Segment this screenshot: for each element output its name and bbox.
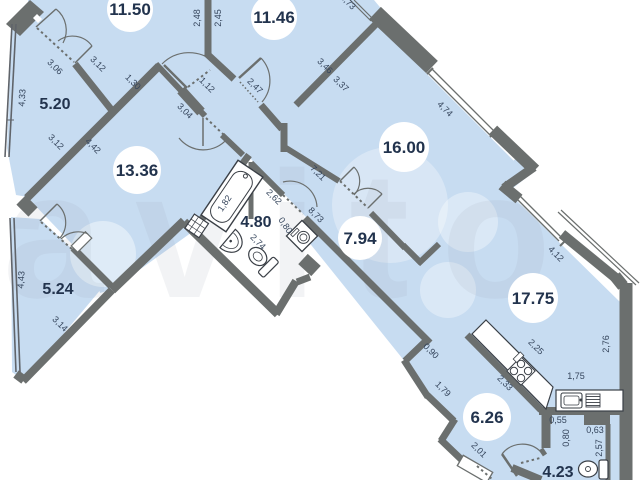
svg-text:5.20: 5.20 xyxy=(39,96,70,113)
svg-text:2,76: 2,76 xyxy=(601,335,611,353)
svg-text:4,33: 4,33 xyxy=(16,89,27,107)
svg-text:11.50: 11.50 xyxy=(109,0,151,19)
svg-text:5.24: 5.24 xyxy=(42,281,73,298)
svg-text:17.75: 17.75 xyxy=(512,289,555,308)
svg-text:2,48: 2,48 xyxy=(192,9,202,27)
svg-text:7.94: 7.94 xyxy=(343,229,377,248)
svg-text:11.46: 11.46 xyxy=(253,8,295,27)
svg-text:4,43: 4,43 xyxy=(15,271,26,289)
svg-text:2,45: 2,45 xyxy=(213,9,223,27)
svg-text:0,63: 0,63 xyxy=(586,425,604,435)
svg-text:0,55: 0,55 xyxy=(549,415,567,425)
svg-text:13.36: 13.36 xyxy=(116,161,159,180)
svg-text:6.26: 6.26 xyxy=(470,408,503,427)
svg-text:4.80: 4.80 xyxy=(240,214,271,231)
svg-text:1,75: 1,75 xyxy=(567,371,585,381)
svg-text:4.23: 4.23 xyxy=(542,464,573,480)
svg-text:2,57: 2,57 xyxy=(594,439,604,457)
svg-text:0,80: 0,80 xyxy=(561,429,571,447)
svg-text:16.00: 16.00 xyxy=(383,138,426,157)
